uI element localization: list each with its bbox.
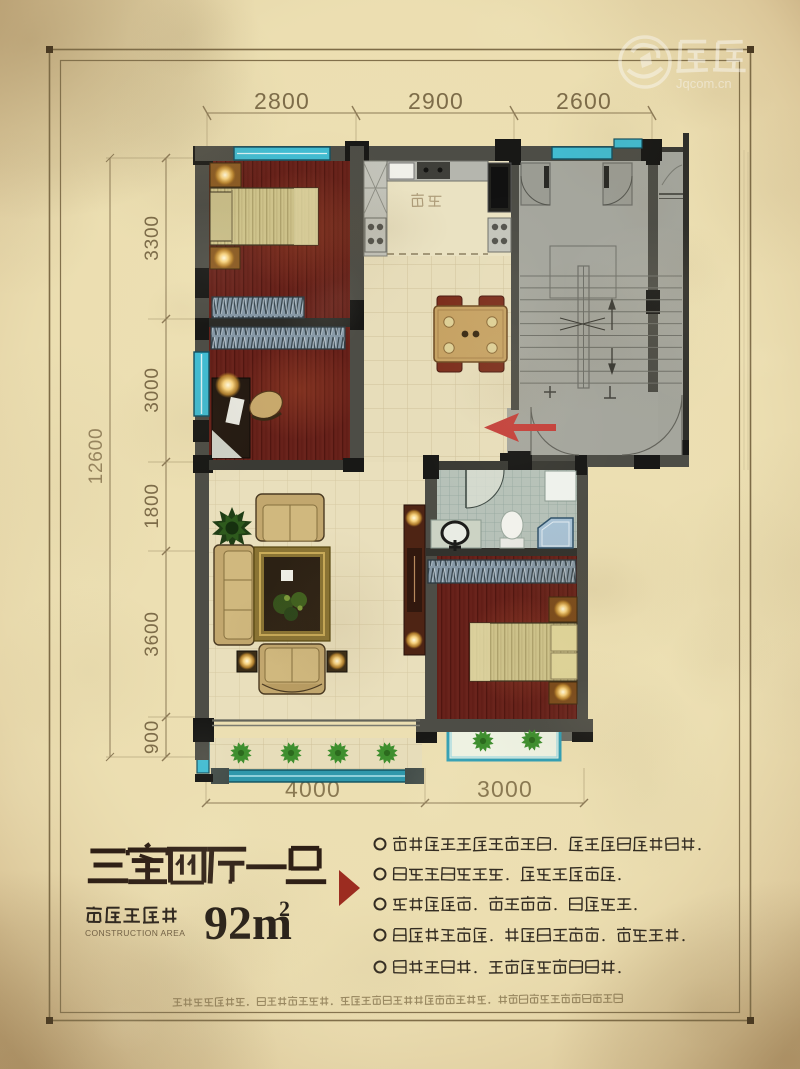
svg-text:2900: 2900 <box>408 88 464 114</box>
